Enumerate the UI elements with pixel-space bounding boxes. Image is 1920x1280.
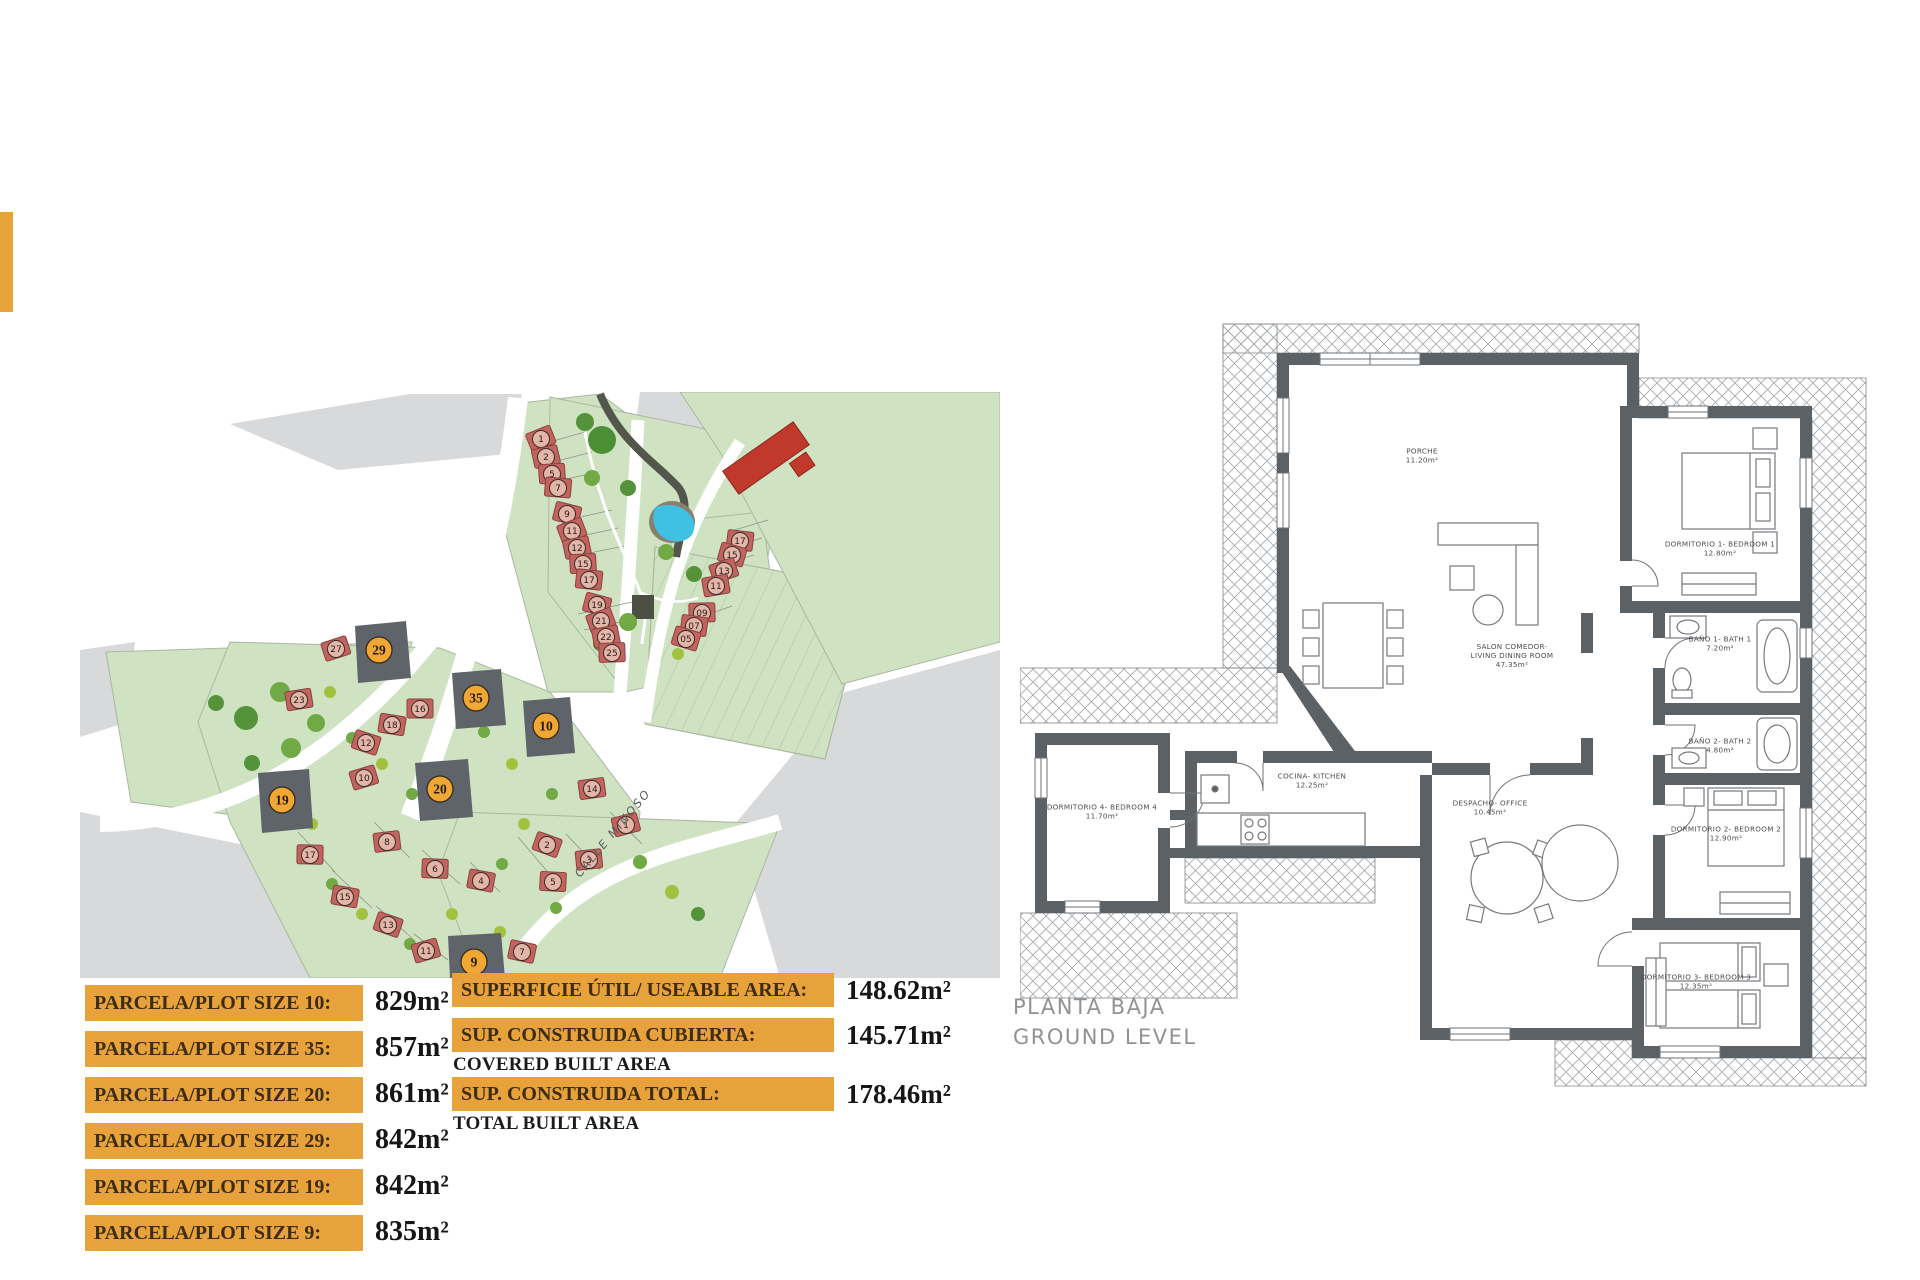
svg-text:6: 6	[432, 865, 438, 875]
house-marker: 25	[599, 643, 626, 663]
svg-text:14: 14	[586, 785, 598, 795]
page-edge-tab	[0, 212, 13, 312]
svg-text:9: 9	[564, 510, 570, 520]
house-marker: 14	[578, 777, 606, 799]
svg-text:13: 13	[382, 921, 393, 931]
parcel-value: 857m²	[375, 1029, 449, 1067]
plot-badge: 10	[533, 713, 559, 739]
svg-text:11: 11	[710, 582, 721, 592]
svg-text:29: 29	[372, 643, 386, 658]
room-label: DORMITORIO 4- BEDROOM 411.70m²	[1047, 803, 1157, 821]
svg-text:15: 15	[339, 893, 350, 903]
area-label: SUPERFICIE ÚTIL/ USEABLE AREA:	[452, 973, 834, 1007]
parcel-value: 835m²	[375, 1213, 449, 1251]
plot-badge: 29	[366, 637, 392, 663]
floor-plan-title-en: GROUND LEVEL	[1013, 1022, 1197, 1052]
svg-text:16: 16	[414, 705, 426, 715]
area-value: 178.46m²	[846, 1075, 951, 1113]
parcel-label: PARCELA/PLOT SIZE 19:	[85, 1169, 363, 1205]
house-marker: 8	[373, 830, 401, 852]
parcel-label: PARCELA/PLOT SIZE 10:	[85, 985, 363, 1021]
svg-text:7: 7	[519, 948, 525, 958]
svg-text:23: 23	[293, 696, 304, 706]
parcel-row: PARCELA/PLOT SIZE 19: 842m²	[85, 1169, 585, 1207]
svg-text:19: 19	[591, 601, 603, 611]
floor-plan-title-es: PLANTA BAJA	[1013, 992, 1197, 1022]
parcel-value: 842m²	[375, 1121, 449, 1159]
svg-text:2: 2	[544, 841, 550, 851]
room-label: BAÑO 1- BATH 17.20m²	[1689, 635, 1752, 653]
plot-badge: 19	[269, 787, 295, 813]
house-marker: 6	[422, 859, 449, 879]
floor-plan: PORCHE11.20m²SALON COMEDOR-LIVING DINING…	[1020, 318, 1880, 1090]
svg-text:10: 10	[539, 719, 553, 734]
room-label: DESPACHO- OFFICE10.45m²	[1453, 799, 1528, 817]
parcel-label: PARCELA/PLOT SIZE 20:	[85, 1077, 363, 1113]
svg-text:11: 11	[420, 947, 431, 957]
plot-badge: 9	[461, 949, 487, 975]
parcel-value: 861m²	[375, 1075, 449, 1113]
area-value: 148.62m²	[846, 971, 951, 1009]
parcel-value: 829m²	[375, 983, 449, 1021]
house-marker: 23	[285, 688, 314, 711]
house-marker: 17	[297, 845, 323, 864]
svg-text:17: 17	[304, 851, 315, 861]
house-marker: 7	[544, 477, 572, 498]
parcel-label: PARCELA/PLOT SIZE 35:	[85, 1031, 363, 1067]
area-label: SUP. CONSTRUIDA TOTAL:	[452, 1077, 834, 1111]
area-sublabel: COVERED BUILT AREA	[453, 1054, 671, 1076]
room-label: COCINA- KITCHEN12.25m²	[1278, 772, 1346, 790]
parcel-row: PARCELA/PLOT SIZE 9: 835m²	[85, 1215, 585, 1253]
svg-text:4: 4	[478, 877, 484, 887]
area-value: 145.71m²	[846, 1016, 951, 1054]
svg-text:25: 25	[606, 649, 617, 659]
house-marker: 15	[331, 885, 360, 908]
parcel-label: PARCELA/PLOT SIZE 9:	[85, 1215, 363, 1251]
svg-text:12: 12	[360, 739, 371, 749]
house-marker: 5	[540, 871, 567, 891]
svg-text:10: 10	[358, 774, 370, 784]
svg-text:05: 05	[680, 635, 691, 645]
room-label: PORCHE11.20m²	[1406, 447, 1439, 465]
area-sublabel: TOTAL BUILT AREA	[453, 1113, 639, 1135]
svg-text:17: 17	[583, 576, 594, 586]
room-label: SALON COMEDOR-LIVING DINING ROOM47.35m²	[1471, 642, 1554, 669]
plot-badge: 35	[463, 685, 489, 711]
floor-plan-title: PLANTA BAJA GROUND LEVEL	[1013, 992, 1197, 1052]
svg-text:7: 7	[555, 484, 561, 494]
house-marker: 18	[378, 713, 407, 736]
svg-text:21: 21	[595, 617, 606, 627]
svg-text:35: 35	[469, 691, 483, 706]
house-marker: 16	[407, 699, 433, 718]
svg-text:11: 11	[566, 527, 577, 537]
park-building	[632, 595, 654, 619]
floor-plan-svg: PORCHE11.20m²SALON COMEDOR-LIVING DINING…	[1020, 318, 1880, 1090]
svg-text:1: 1	[538, 435, 544, 445]
parcel-label: PARCELA/PLOT SIZE 29:	[85, 1123, 363, 1159]
site-plan: 1257911121517192122251715131109070527231…	[80, 392, 1000, 978]
area-row: SUP. CONSTRUIDA TOTAL: TOTAL BUILT AREA …	[452, 1077, 1012, 1167]
parcel-value: 842m²	[375, 1167, 449, 1205]
house-marker: 17	[575, 569, 603, 591]
svg-text:12: 12	[571, 544, 582, 554]
svg-text:20: 20	[433, 782, 447, 797]
area-label: SUP. CONSTRUIDA CUBIERTA:	[452, 1018, 834, 1052]
svg-text:18: 18	[386, 721, 398, 731]
brochure-page: 1257911121517192122251715131109070527231…	[0, 0, 1920, 1280]
svg-text:8: 8	[384, 838, 390, 848]
svg-text:27: 27	[330, 645, 341, 655]
svg-text:19: 19	[275, 793, 289, 808]
svg-text:5: 5	[550, 878, 556, 888]
plot-badge: 20	[427, 776, 453, 802]
svg-text:22: 22	[600, 633, 611, 643]
svg-text:2: 2	[543, 453, 549, 463]
site-plan-svg: 1257911121517192122251715131109070527231…	[80, 392, 1000, 978]
svg-text:9: 9	[471, 955, 478, 970]
house-marker: 11	[701, 574, 730, 597]
